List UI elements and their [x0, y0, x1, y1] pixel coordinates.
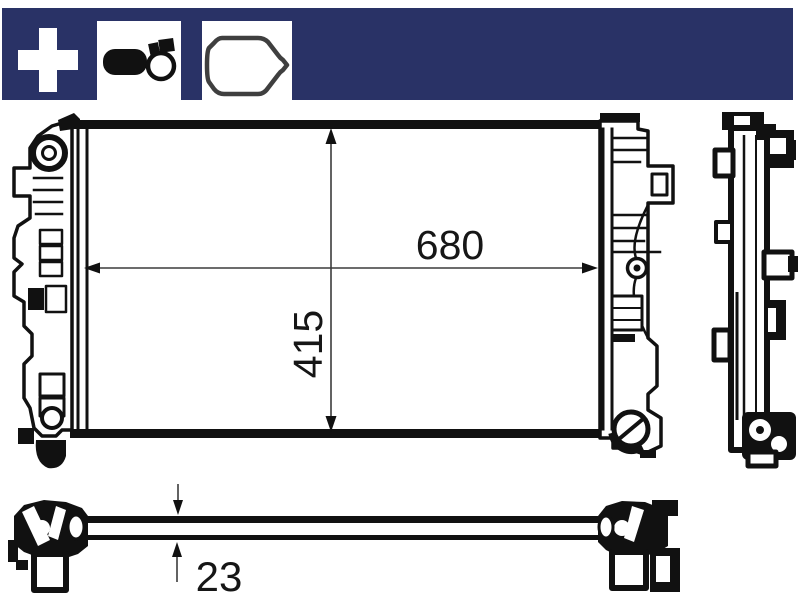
width-dimension-label: 680 [416, 222, 484, 268]
arrowhead-up [326, 128, 337, 144]
right-tank [600, 113, 673, 458]
dimension-width: 680 [84, 222, 598, 274]
top-view [8, 500, 680, 592]
core-top-edge [66, 120, 616, 129]
left-end-fitting [8, 500, 88, 590]
radiator-technical-drawing: 680 415 23 [0, 0, 800, 600]
plus-icon [18, 26, 80, 94]
front-view [14, 113, 673, 468]
strip-top-line [86, 516, 606, 523]
arrowhead-right [582, 263, 598, 274]
core-bottom-edge [70, 429, 613, 438]
left-tank [14, 113, 87, 468]
right-end-fitting [598, 500, 680, 592]
right-tank-top-cap [600, 113, 640, 122]
height-dimension-label: 415 [285, 310, 331, 378]
dimension-height: 415 [285, 128, 337, 432]
strip-bottom-line [86, 535, 606, 540]
gasket-seal-outline-icon [202, 21, 292, 101]
expansion-tank-clamp-icon [97, 21, 181, 101]
gasket-outline [207, 38, 287, 94]
side-view [714, 112, 798, 466]
side-mid-bracket [764, 252, 792, 278]
header-bar [2, 8, 793, 100]
tank-body [103, 49, 147, 75]
clamp-ring [148, 53, 174, 79]
left-drain-plug [36, 440, 66, 468]
mount-bracket-hole [652, 174, 667, 195]
left-drain-boss [42, 408, 62, 428]
thickness-dimension-label: 23 [196, 553, 243, 600]
arrowhead-down [173, 500, 183, 515]
dimension-thickness: 23 [172, 484, 242, 600]
arrowhead-up [172, 542, 182, 557]
